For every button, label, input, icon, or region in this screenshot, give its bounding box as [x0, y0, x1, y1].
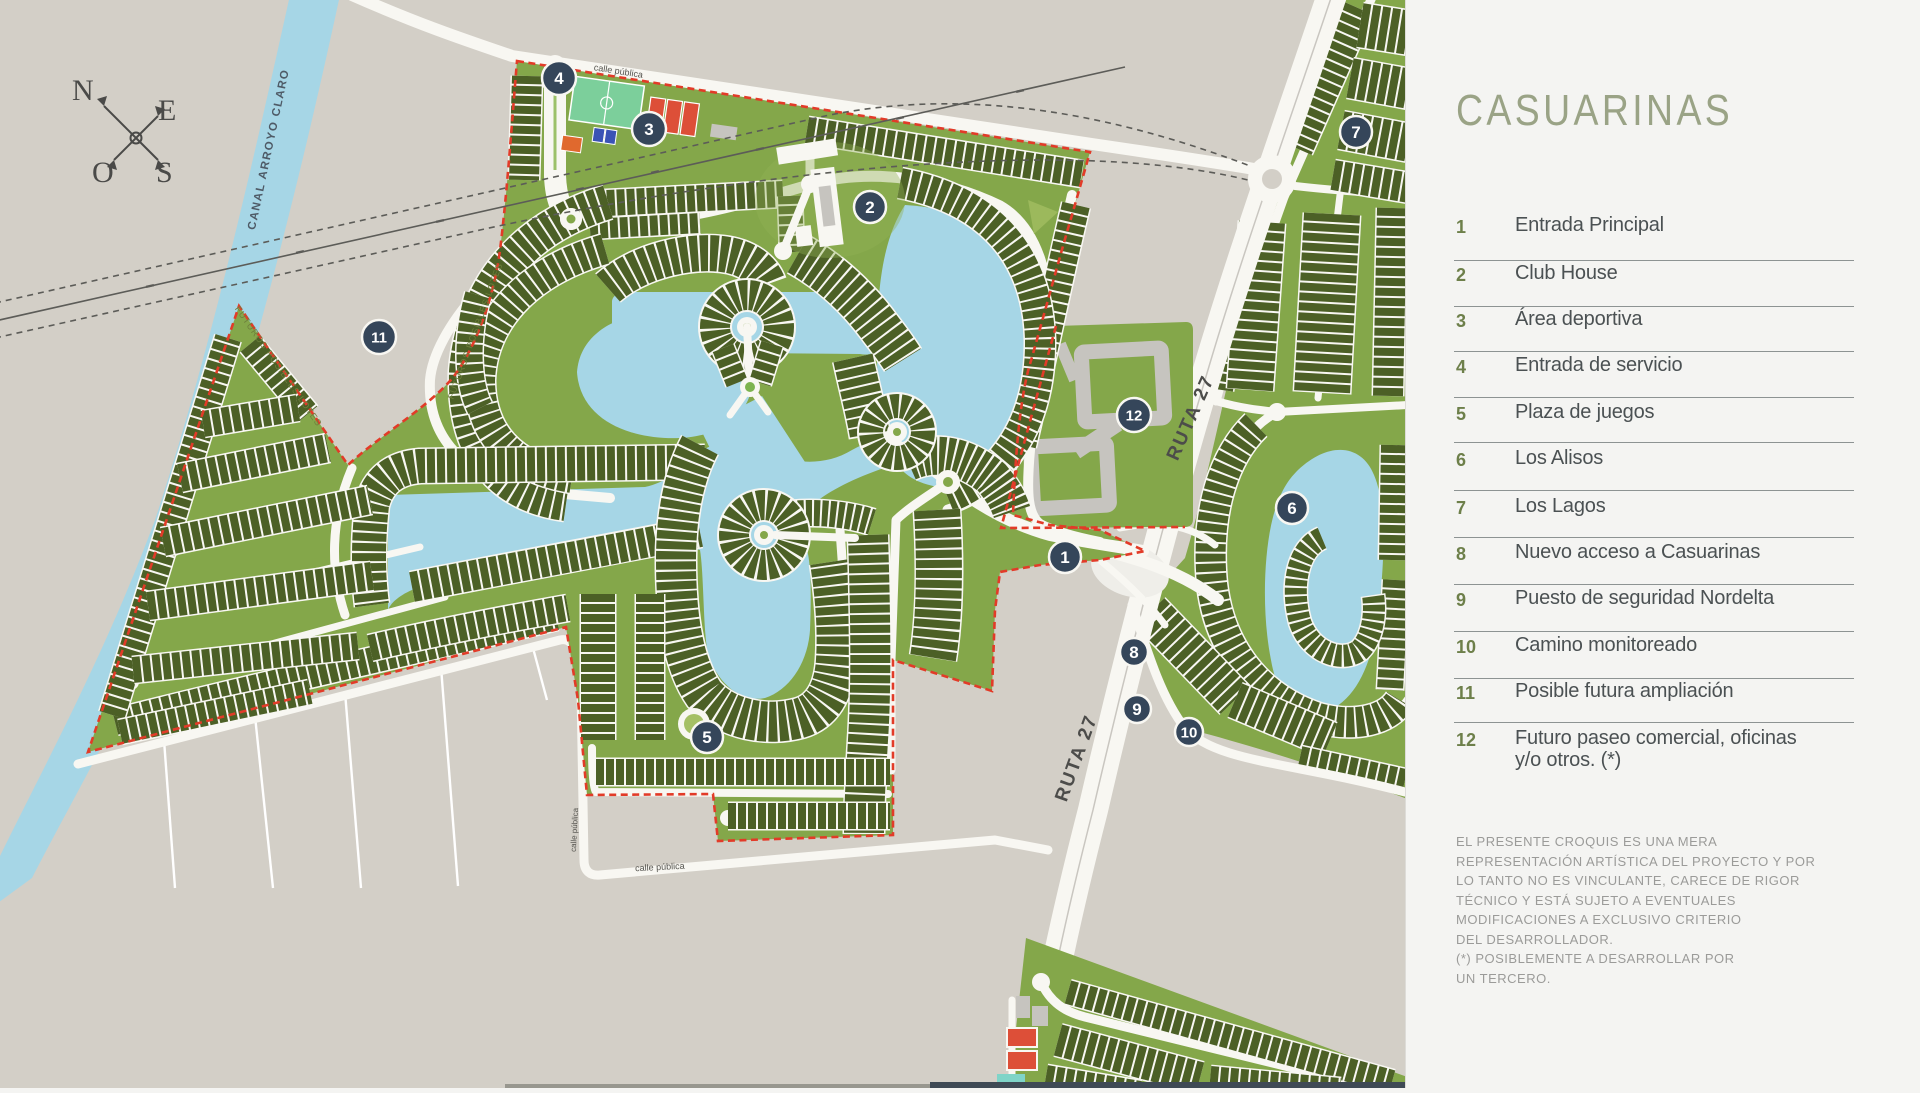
svg-text:10: 10 [1181, 724, 1198, 741]
svg-text:4: 4 [554, 69, 564, 88]
svg-text:6: 6 [1287, 499, 1296, 518]
svg-text:9: 9 [1132, 700, 1141, 719]
svg-text:3: 3 [644, 120, 653, 139]
svg-text:8: 8 [1129, 643, 1138, 662]
svg-text:O: O [92, 156, 114, 189]
svg-text:12: 12 [1126, 407, 1143, 424]
svg-text:11: 11 [371, 329, 387, 346]
svg-text:E: E [158, 94, 176, 127]
svg-text:1: 1 [1060, 548, 1069, 567]
svg-text:5: 5 [702, 728, 711, 747]
svg-text:N: N [72, 74, 94, 107]
svg-text:7: 7 [1351, 123, 1360, 142]
svg-text:2: 2 [865, 198, 874, 217]
svg-text:S: S [156, 156, 173, 189]
